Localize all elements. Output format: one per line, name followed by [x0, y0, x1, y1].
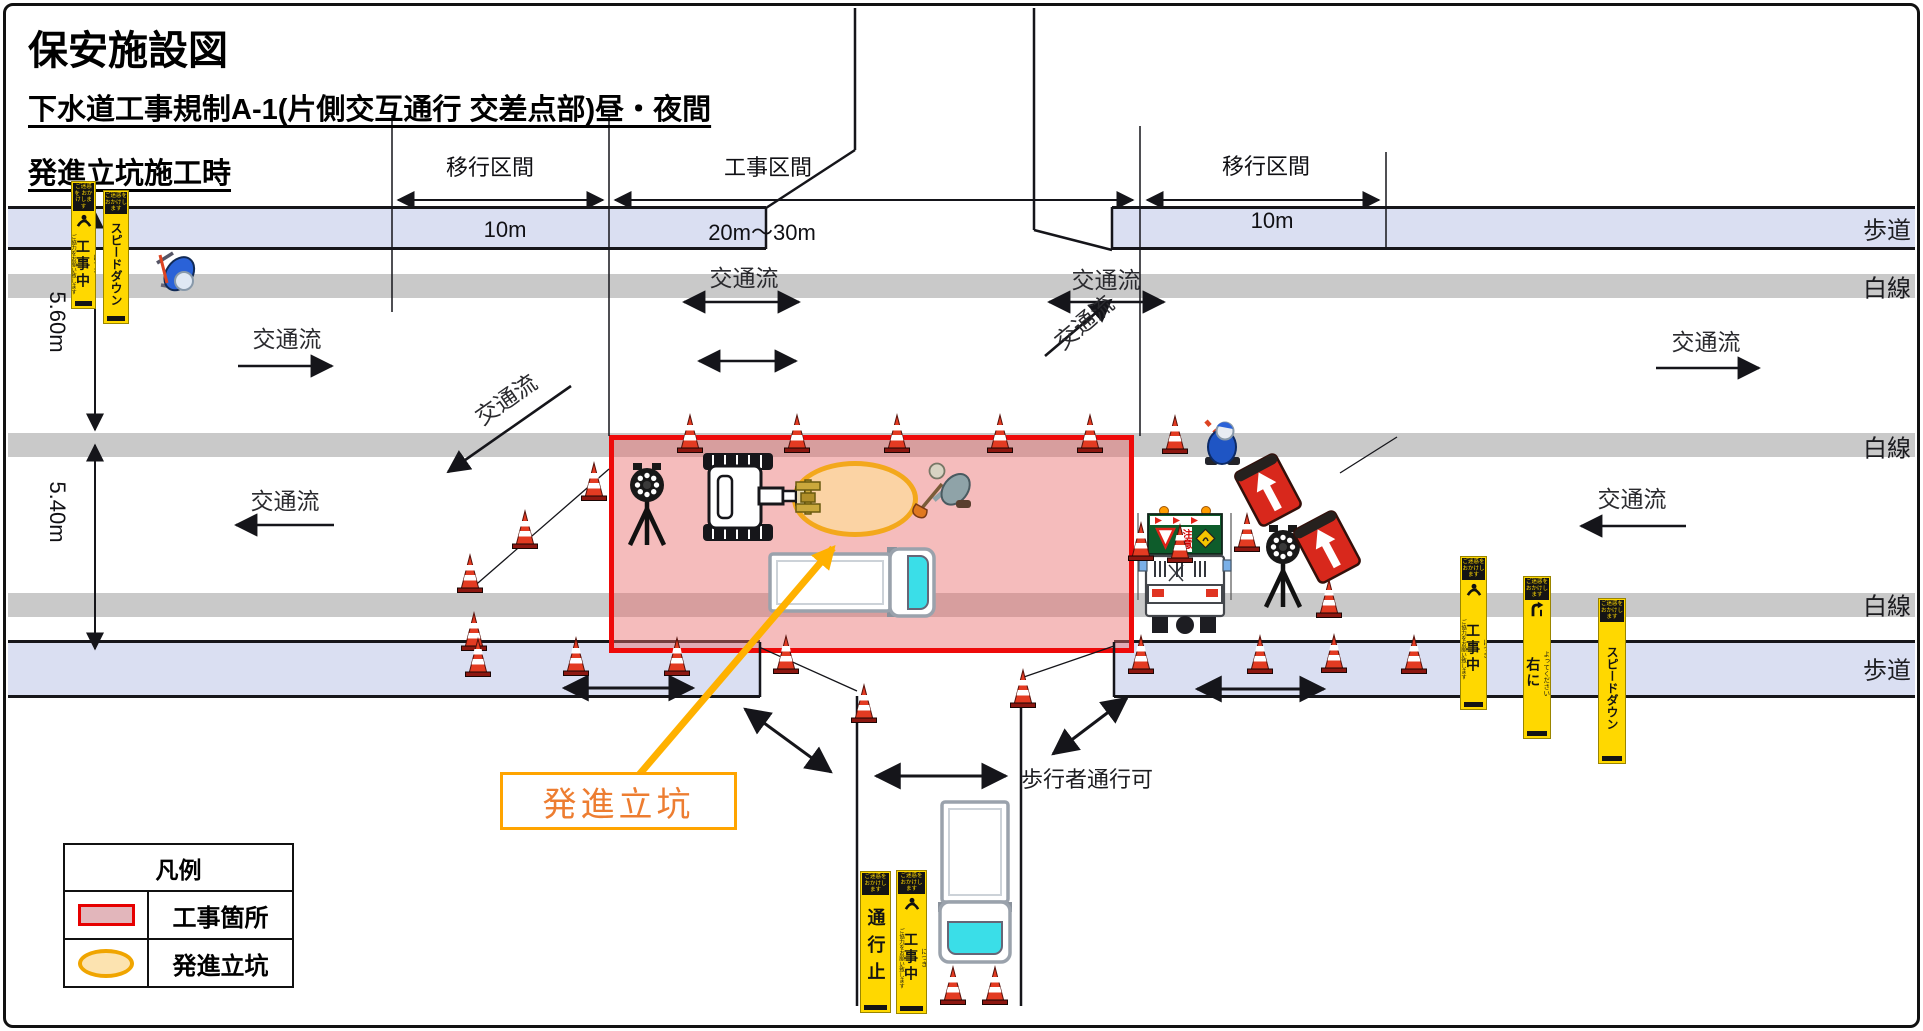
dimension-value: 20m〜30m: [708, 215, 816, 247]
callout-arrow: [620, 548, 833, 797]
traffic-cone: [983, 967, 1008, 1005]
traffic-flow-label: 交通流: [253, 320, 322, 354]
sign-header: ご迷惑を おかけします: [73, 183, 95, 211]
page-title: 保安施設図: [28, 18, 228, 76]
sign-sub-text: よってください: [1541, 651, 1548, 697]
traffic-cone: [458, 555, 483, 593]
sign-main-text: 工事中: [76, 239, 90, 290]
traffic-cone: [1011, 670, 1036, 708]
sign-main-text: 工事中: [1466, 623, 1480, 674]
work-truck: [770, 547, 934, 617]
legend-row-work-zone: 工事箇所: [65, 892, 292, 938]
sign-speeddown: ご迷惑を おかけしますスピードダウン: [1598, 598, 1626, 764]
construction-line: [1034, 230, 1112, 250]
road-edge-label: 歩道: [1863, 211, 1911, 246]
sign-koujichuu: ご迷惑を おかけしますご協力をお願い致します工事中につき: [896, 870, 927, 1014]
construction-line: [1340, 437, 1397, 473]
sign-koujichuu: ご迷惑を おかけしますご協力をお願い致します工事中につき: [1460, 556, 1487, 710]
safety-facility-diagram: 保安施設図 下水道工事規制A-1(片側交互通行 交差点部)昼・夜間 発進立坑施工…: [0, 0, 1923, 1031]
road-edge-label: 白線: [1863, 429, 1911, 464]
sign-main-text: 工事中: [904, 932, 918, 983]
traffic-cone: [462, 613, 487, 651]
sign-header: ご迷惑を おかけします: [1600, 600, 1624, 622]
traffic-cone: [665, 638, 690, 676]
traffic-cone: [885, 415, 910, 453]
sign-main-text: スピードダウン: [1606, 646, 1618, 730]
construction-line: [1021, 646, 1114, 678]
sign-footer: [1527, 731, 1547, 736]
traffic-cone: [582, 463, 607, 501]
traffic-cone: [564, 638, 589, 676]
sign-footer: [1602, 756, 1622, 761]
sign-sub-text: につき: [91, 254, 96, 274]
pedestrian-note: 歩行者通行可: [1021, 762, 1153, 794]
traffic-flow-label: 交通流: [251, 482, 320, 516]
flagger-figure: [1205, 421, 1240, 465]
traffic-cone: [1402, 636, 1427, 674]
sign-footer: [107, 316, 126, 321]
sign-header: ご迷惑を おかけします: [898, 872, 925, 894]
sign-migi: ご迷惑を おかけします右によってください: [1523, 576, 1551, 739]
bowing-worker-icon: [75, 211, 93, 229]
legend-label: 工事箇所: [149, 892, 292, 938]
dimension-label: 5.60m: [44, 291, 70, 352]
dimension-label: 5.40m: [44, 481, 70, 542]
excavator: [703, 453, 805, 541]
sign-main-text: 右に: [1526, 657, 1540, 689]
curve-right-icon: [1529, 600, 1545, 618]
worker-figure: [913, 464, 976, 518]
bowing-worker-icon: [1465, 580, 1483, 598]
traffic-flow-label: 交通流: [1672, 323, 1741, 357]
traffic-cone: [988, 415, 1013, 453]
sign-speeddown: ご迷惑を おかけしますスピードダウン: [103, 190, 129, 324]
legend-header: 凡例: [65, 845, 292, 892]
sign-truck: 注意: [1138, 507, 1231, 635]
subtitle-phase: 発進立坑施工時: [28, 150, 231, 192]
dimension-value: 10m: [484, 217, 527, 243]
dimension-value: 10m: [1251, 208, 1294, 234]
bowing-worker-icon: [903, 894, 921, 912]
sign-main-text: スピードダウン: [110, 222, 122, 306]
legend-swatch-work-zone: [65, 892, 149, 938]
legend: 凡例 工事箇所 発進立坑: [63, 843, 294, 988]
legend-label: 発進立坑: [149, 940, 292, 986]
sign-footer: [75, 301, 93, 306]
traffic-cone: [1248, 636, 1273, 674]
beacon-light: [630, 463, 664, 545]
sign-main-text: 通行止: [867, 908, 885, 989]
flow-arrow: [1053, 698, 1127, 754]
traffic-cone: [941, 967, 966, 1005]
arrow-board: [1234, 453, 1303, 528]
sign-tsuukoudome: ご迷惑を おかけします通行止: [860, 871, 891, 1013]
sign-footer: [1464, 702, 1484, 707]
road-edge-label: 白線: [1863, 269, 1911, 304]
arrow-board: [1293, 510, 1362, 585]
dimension-label: 工事区間: [724, 150, 812, 182]
launch-shaft-callout: 発進立坑: [500, 772, 737, 830]
traffic-cone: [1078, 415, 1103, 453]
sign-header: ご迷惑を おかけします: [862, 873, 889, 895]
subtitle-regulation: 下水道工事規制A-1(片側交互通行 交差点部)昼・夜間: [28, 86, 711, 128]
dimension-label: 移行区間: [1222, 149, 1310, 181]
closed-road-truck: [938, 802, 1012, 962]
road-edge-label: 歩道: [1863, 651, 1911, 686]
sign-header: ご迷惑を おかけします: [1462, 558, 1486, 580]
sign-footer: [864, 1005, 887, 1010]
traffic-cone: [1129, 636, 1154, 674]
legend-row-launch-shaft: 発進立坑: [65, 938, 292, 986]
traffic-flow-label: 交通流: [1598, 480, 1667, 514]
sign-sub-text: につき: [919, 948, 926, 968]
dimension-label: 移行区間: [446, 150, 534, 182]
traffic-cone: [1322, 635, 1347, 673]
traffic-flow-label: 交通流: [1072, 261, 1141, 295]
sign-koujichuu: ご迷惑を おかけしますご協力をお願い致します工事中につき: [71, 181, 96, 309]
traffic-cone: [678, 415, 703, 453]
sign-footer: [900, 1006, 923, 1011]
traffic-cone: [785, 415, 810, 453]
traffic-cone: [1317, 580, 1342, 618]
traffic-cone: [1235, 514, 1260, 552]
sign-header: ご迷惑を おかけします: [1525, 578, 1549, 600]
flow-arrow: [745, 709, 831, 772]
sign-header: ご迷惑を おかけします: [105, 192, 128, 214]
sign-sub-text: につき: [1481, 639, 1487, 659]
road-edge-label: 白線: [1863, 587, 1911, 622]
traffic-cone: [1163, 416, 1188, 454]
callout-label: 発進立坑: [543, 777, 695, 826]
traffic-flow-label: 交通流: [710, 259, 779, 293]
legend-swatch-launch-shaft: [65, 940, 149, 986]
traffic-cone: [513, 511, 538, 549]
cyclist-figure: [157, 252, 200, 296]
